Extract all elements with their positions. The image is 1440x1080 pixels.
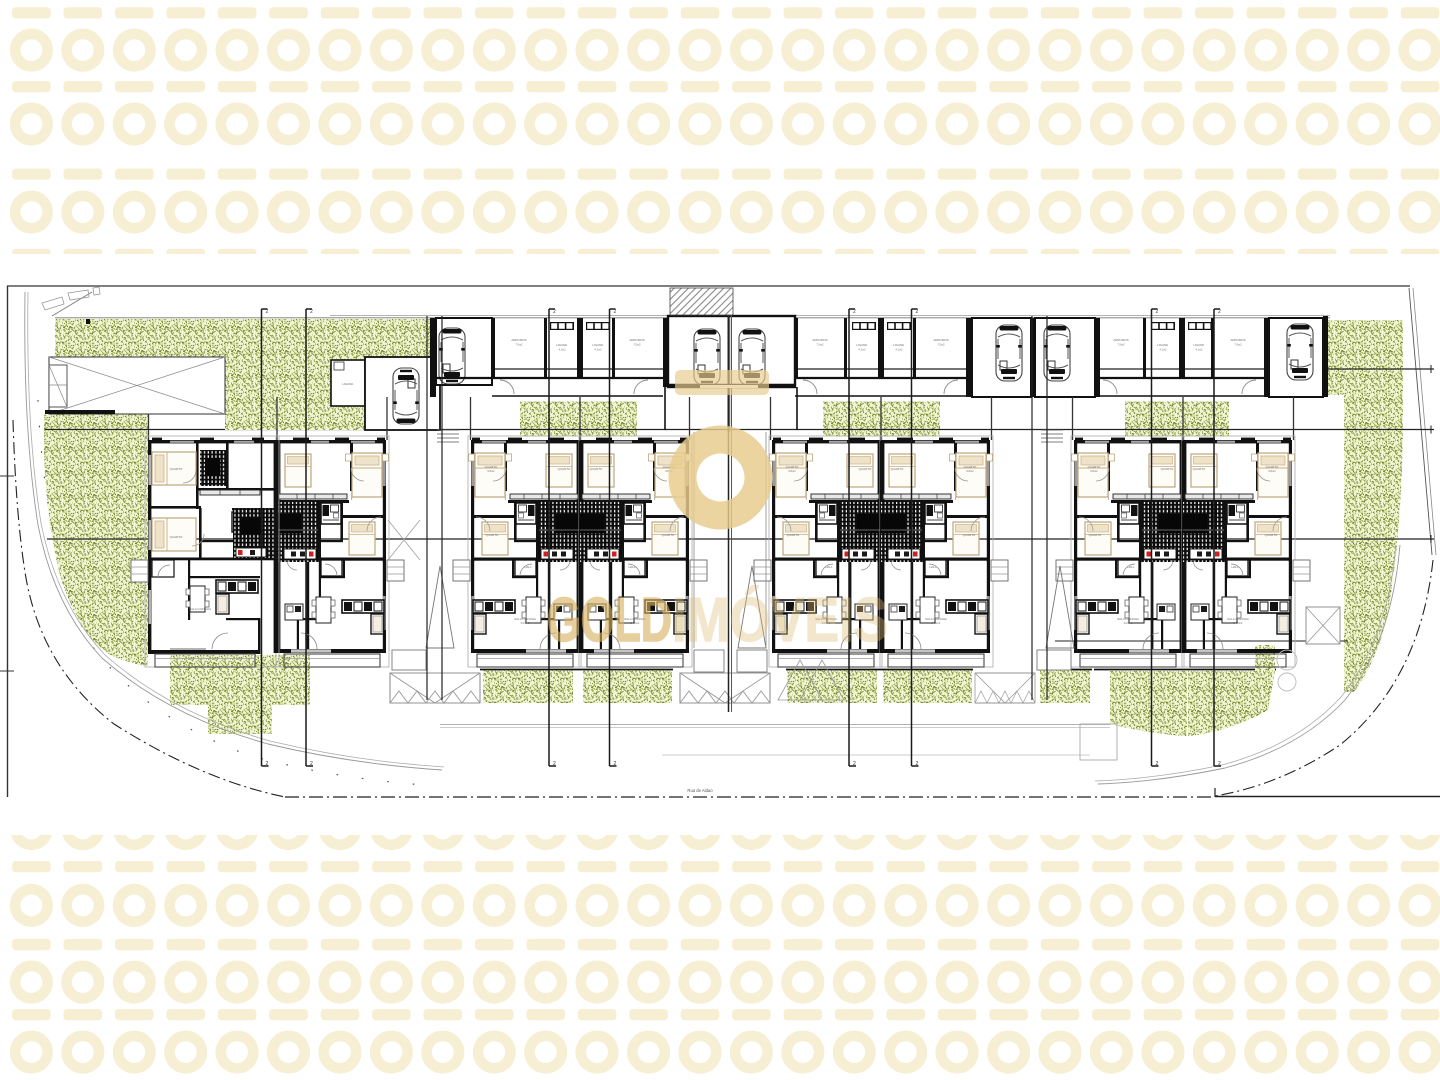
svg-text:LAVAND.: LAVAND. [1193, 343, 1205, 347]
svg-text:QUARTO: QUARTO [662, 533, 675, 537]
svg-text:ARRUMOS: ARRUMOS [629, 338, 644, 342]
svg-text:9.8m2: 9.8m2 [487, 469, 495, 473]
svg-text:2: 2 [614, 761, 617, 767]
svg-text:2: 2 [1156, 761, 1159, 767]
svg-text:QUARTO: QUARTO [891, 467, 904, 471]
svg-text:24.6m2: 24.6m2 [1124, 621, 1133, 625]
svg-text:4.1m2: 4.1m2 [859, 349, 867, 352]
svg-text:7.5m2: 7.5m2 [816, 343, 824, 347]
svg-text:SALA COZINHA: SALA COZINHA [1227, 617, 1249, 621]
svg-text:QUARTO: QUARTO [1266, 465, 1279, 469]
svg-text:QUARTO: QUARTO [1089, 533, 1102, 537]
svg-text:2: 2 [1156, 309, 1159, 315]
svg-text:HALL: HALL [826, 565, 833, 569]
svg-text:2: 2 [266, 761, 269, 767]
svg-text:IMÓVEIS: IMÓVEIS [672, 586, 888, 655]
svg-text:SALA COZINHA: SALA COZINHA [189, 607, 211, 611]
svg-text:SALA COZINHA: SALA COZINHA [925, 617, 947, 621]
svg-text:QUARTO: QUARTO [486, 533, 499, 537]
svg-text:ARRUMOS: ARRUMOS [812, 338, 827, 342]
svg-text:LAVAND.: LAVAND. [1157, 343, 1169, 347]
svg-text:4.1m2: 4.1m2 [1160, 349, 1168, 352]
svg-text:24.6m2: 24.6m2 [1234, 621, 1243, 625]
svg-text:2: 2 [853, 761, 856, 767]
svg-text:2: 2 [614, 309, 617, 315]
svg-text:LAVAND.: LAVAND. [856, 343, 868, 347]
svg-text:2: 2 [310, 309, 313, 315]
svg-text:LAVAND.: LAVAND. [592, 343, 604, 347]
svg-text:7.5m2: 7.5m2 [937, 343, 945, 347]
svg-text:QUARTO: QUARTO [1088, 465, 1101, 469]
svg-text:LAVAND.: LAVAND. [556, 343, 568, 347]
svg-text:2: 2 [916, 309, 919, 315]
svg-text:SALA COZINHA: SALA COZINHA [514, 617, 536, 621]
svg-text:7.5m2: 7.5m2 [633, 343, 641, 347]
svg-text:2: 2 [1218, 761, 1221, 767]
svg-text:QUARTO: QUARTO [859, 467, 872, 471]
svg-text:9.8m2: 9.8m2 [788, 469, 796, 473]
svg-text:ARRUMOS: ARRUMOS [511, 338, 526, 342]
svg-text:ARRUMOS: ARRUMOS [933, 338, 948, 342]
svg-text:HALL: HALL [1128, 565, 1135, 569]
svg-text:4.1m2: 4.1m2 [595, 349, 603, 352]
svg-text:24.6m2: 24.6m2 [932, 621, 941, 625]
svg-text:2: 2 [1218, 309, 1221, 315]
svg-text:HALL: HALL [930, 565, 937, 569]
svg-text:24.6m2: 24.6m2 [521, 621, 530, 625]
svg-text:LAVAND.: LAVAND. [342, 382, 354, 386]
svg-text:4.1m2: 4.1m2 [559, 349, 567, 352]
svg-text:2: 2 [553, 309, 556, 315]
svg-text:QUARTO: QUARTO [1265, 533, 1278, 537]
svg-text:QUARTO: QUARTO [170, 467, 183, 471]
svg-text:7.5m2: 7.5m2 [1117, 343, 1125, 347]
svg-text:2: 2 [916, 761, 919, 767]
svg-text:QUARTO: QUARTO [1193, 467, 1206, 471]
svg-text:QUARTO: QUARTO [963, 533, 976, 537]
svg-text:2: 2 [553, 761, 556, 767]
svg-text:GOLD: GOLD [547, 586, 672, 655]
svg-text:LAVAND.: LAVAND. [893, 343, 905, 347]
svg-text:QUARTO: QUARTO [786, 465, 799, 469]
svg-text:2: 2 [853, 309, 856, 315]
svg-text:7.5m2: 7.5m2 [515, 343, 523, 347]
svg-text:ARRUMOS: ARRUMOS [1230, 338, 1245, 342]
svg-text:7.5m2: 7.5m2 [1234, 343, 1242, 347]
svg-text:SALA COZINHA: SALA COZINHA [1117, 617, 1139, 621]
svg-text:4.1m2: 4.1m2 [1196, 349, 1204, 352]
svg-text:QUARTO: QUARTO [964, 465, 977, 469]
svg-text:QUARTO: QUARTO [558, 467, 571, 471]
svg-text:HALL: HALL [1232, 565, 1239, 569]
svg-text:QUARTO: QUARTO [1161, 467, 1174, 471]
svg-text:4.1m2: 4.1m2 [896, 349, 904, 352]
svg-text:QUARTO: QUARTO [485, 465, 498, 469]
svg-text:9.8m2: 9.8m2 [966, 469, 974, 473]
svg-text:ARRUMOS: ARRUMOS [1113, 338, 1128, 342]
svg-text:HALL: HALL [525, 565, 532, 569]
svg-text:Rua de Aldao: Rua de Aldao [687, 788, 713, 793]
svg-text:2: 2 [310, 761, 313, 767]
svg-text:QUARTO: QUARTO [170, 535, 183, 539]
svg-text:2: 2 [266, 309, 269, 315]
svg-text:QUARTO: QUARTO [590, 467, 603, 471]
svg-text:HALL: HALL [629, 565, 636, 569]
svg-text:9.8m2: 9.8m2 [1090, 469, 1098, 473]
svg-text:9.8m2: 9.8m2 [1268, 469, 1276, 473]
svg-text:QUARTO: QUARTO [787, 533, 800, 537]
